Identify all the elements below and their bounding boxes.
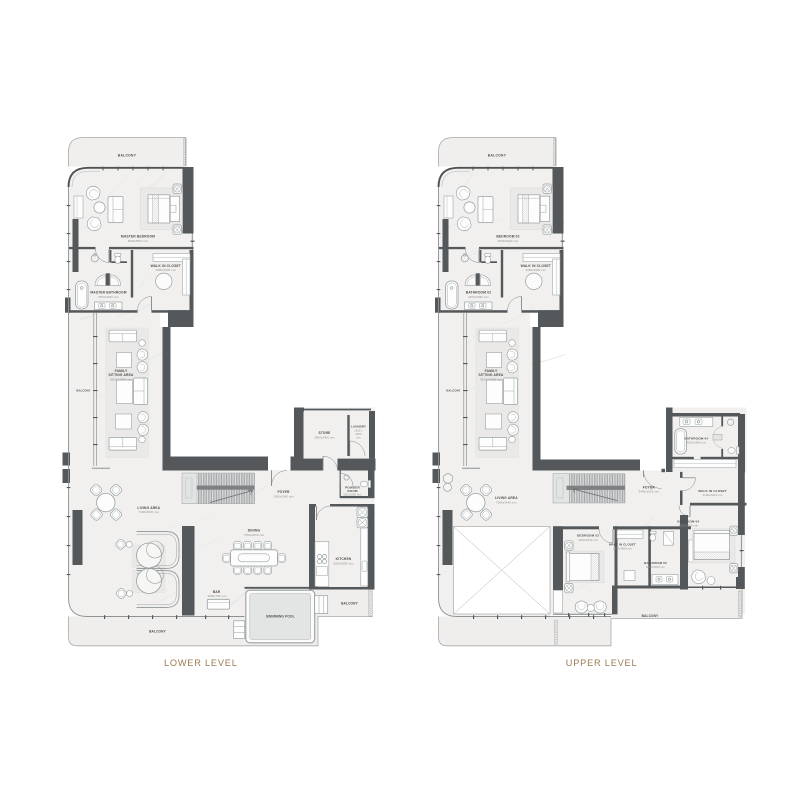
svg-text:1520 x: 1520 x [354, 429, 363, 433]
svg-text:BALCONY: BALCONY [446, 389, 460, 393]
svg-text:2300x2043 mm: 2300x2043 mm [703, 493, 723, 497]
svg-text:STORE: STORE [318, 431, 331, 435]
svg-text:BEDROOM 04: BEDROOM 04 [677, 520, 699, 524]
svg-text:3665x3530 mm: 3665x3530 mm [156, 268, 177, 272]
svg-text:BALCONY: BALCONY [149, 630, 167, 634]
svg-text:DINING: DINING [248, 529, 261, 533]
svg-text:2400x3600 mm: 2400x3600 mm [613, 547, 632, 551]
svg-text:3440x1525 mm: 3440x1525 mm [639, 490, 660, 494]
svg-text:LAUNDRY: LAUNDRY [351, 425, 366, 429]
svg-text:UPPER LEVEL: UPPER LEVEL [566, 658, 638, 668]
svg-text:5050x5050 mm: 5050x5050 mm [333, 562, 354, 566]
svg-text:3050x4900 mm: 3050x4900 mm [678, 524, 698, 528]
svg-text:FAMILY: FAMILY [485, 369, 498, 373]
svg-text:5000x5292 mm: 5000x5292 mm [498, 239, 519, 243]
svg-text:3825x10050 mm: 3825x10050 mm [110, 377, 133, 381]
svg-text:3665x3530 mm: 3665x3530 mm [526, 268, 547, 272]
svg-text:7000x3530 mm: 7000x3530 mm [139, 510, 160, 514]
svg-text:2000x3650 mm: 2000x3650 mm [646, 565, 665, 569]
svg-text:BEDROOM 02: BEDROOM 02 [496, 235, 519, 239]
svg-text:BATHROOM 04: BATHROOM 04 [684, 436, 708, 440]
svg-text:ROOM: ROOM [347, 489, 357, 493]
svg-text:BALCONY: BALCONY [341, 601, 359, 605]
svg-text:7250x2603 mm: 7250x2603 mm [244, 533, 265, 537]
svg-text:3825x10050 mm: 3825x10050 mm [480, 377, 503, 381]
svg-text:5000x5952 mm: 5000x5952 mm [128, 239, 149, 243]
svg-text:mm: mm [356, 437, 361, 440]
svg-text:LIVING AREA: LIVING AREA [495, 496, 518, 500]
svg-text:4025x2540 mm: 4025x2540 mm [686, 440, 706, 444]
svg-text:WALK IN CLOSET: WALK IN CLOSET [698, 489, 727, 493]
svg-text:BALCONY: BALCONY [642, 614, 660, 618]
svg-text:MASTER BEDROOM: MASTER BEDROOM [121, 235, 155, 239]
svg-text:2870x3930 mm: 2870x3930 mm [468, 295, 489, 299]
svg-text:2800x2400 mm: 2800x2400 mm [314, 436, 335, 440]
svg-text:BEDROOM 03: BEDROOM 03 [577, 534, 599, 538]
svg-text:LOWER LEVEL: LOWER LEVEL [164, 658, 238, 668]
svg-text:SWIMMING POOL: SWIMMING POOL [266, 614, 295, 618]
svg-text:FAMILY: FAMILY [115, 369, 128, 373]
svg-text:920x2000 mm: 920x2000 mm [343, 493, 362, 497]
svg-text:2000x2040 mm: 2000x2040 mm [273, 495, 294, 499]
svg-text:WALK IN CLOSET: WALK IN CLOSET [609, 543, 636, 547]
svg-text:2600: 2600 [355, 432, 362, 436]
svg-text:BALCONY: BALCONY [76, 389, 90, 393]
svg-text:BALCONY: BALCONY [118, 154, 137, 158]
svg-text:KITCHEN: KITCHEN [336, 557, 352, 561]
svg-text:7000x3440 mm: 7000x3440 mm [496, 501, 517, 505]
svg-text:BATHROOM 03: BATHROOM 03 [644, 561, 667, 565]
svg-text:BALCONY: BALCONY [488, 154, 507, 158]
svg-text:3200x3440 mm: 3200x3440 mm [578, 538, 598, 542]
svg-text:2900x780 mm: 2900x780 mm [208, 594, 227, 598]
svg-text:2870x3930 mm: 2870x3930 mm [98, 295, 119, 299]
